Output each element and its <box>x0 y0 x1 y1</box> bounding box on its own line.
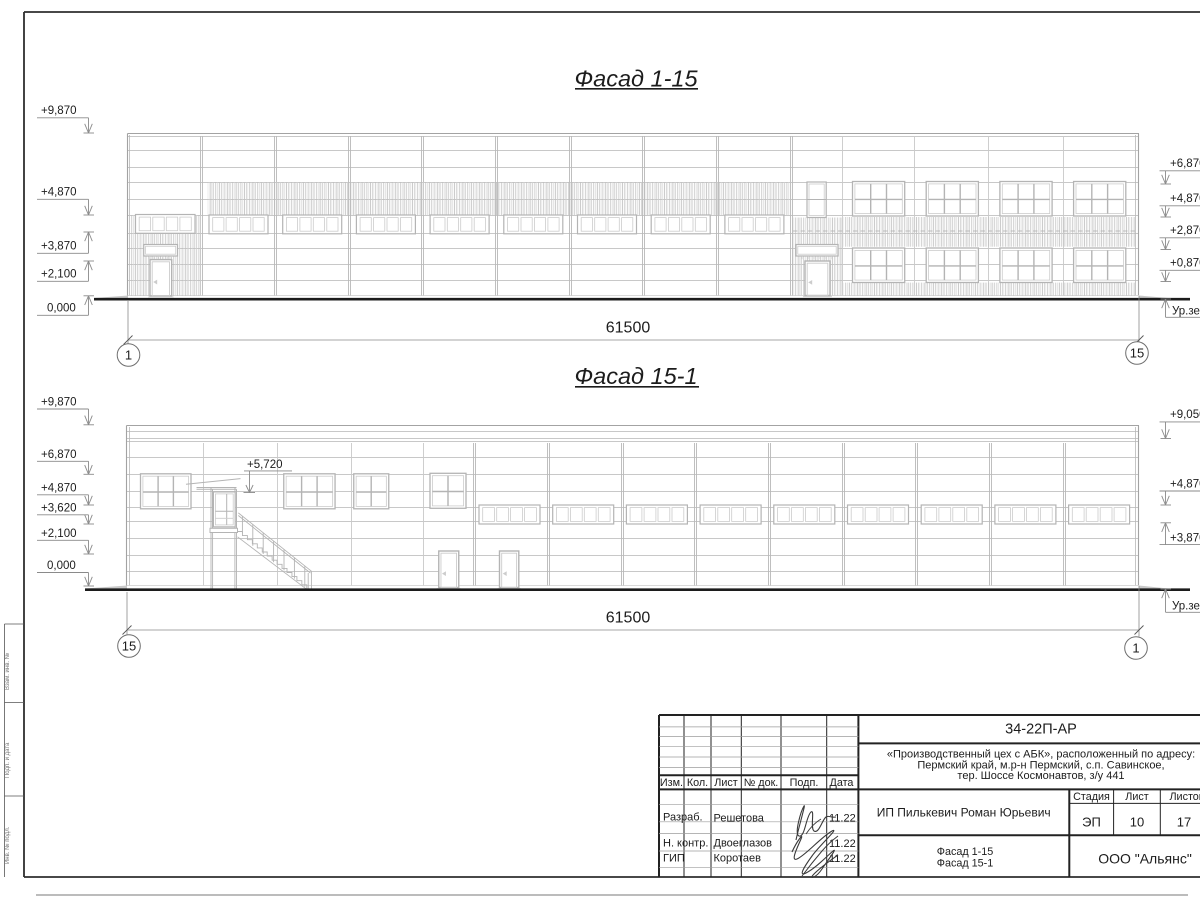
svg-text:Двоеглазов: Двоеглазов <box>714 838 773 850</box>
svg-text:Фасад 15-1: Фасад 15-1 <box>937 858 994 870</box>
svg-text:+9,870: +9,870 <box>41 397 77 409</box>
svg-text:+6,870: +6,870 <box>1170 158 1200 170</box>
svg-text:Разраб.: Разраб. <box>663 812 703 824</box>
svg-text:17: 17 <box>1177 815 1191 830</box>
svg-text:0,000: 0,000 <box>47 560 76 572</box>
svg-text:+9,870: +9,870 <box>41 105 77 117</box>
svg-text:№ док.: № док. <box>744 777 779 789</box>
svg-text:1: 1 <box>125 348 132 363</box>
svg-text:Изм.: Изм. <box>660 777 683 789</box>
svg-text:+9,050: +9,050 <box>1170 409 1200 421</box>
svg-text:61500: 61500 <box>606 320 651 337</box>
svg-text:Фасад 1-15: Фасад 1-15 <box>937 846 994 858</box>
svg-text:Решетова: Решетова <box>714 813 765 825</box>
svg-text:+4,870: +4,870 <box>41 483 77 495</box>
svg-text:15: 15 <box>122 639 136 654</box>
svg-text:Подп.: Подп. <box>790 777 819 789</box>
svg-text:Дата: Дата <box>830 777 854 789</box>
svg-text:+5,720: +5,720 <box>247 459 283 471</box>
svg-text:Инв. № подл.: Инв. № подл. <box>4 826 11 864</box>
svg-text:Подп. и дата: Подп. и дата <box>5 742 11 778</box>
svg-text:0,000: 0,000 <box>47 303 76 315</box>
svg-text:ГИП: ГИП <box>663 853 685 865</box>
svg-text:ООО "Альянс": ООО "Альянс" <box>1098 851 1192 867</box>
svg-text:Стадия: Стадия <box>1073 791 1110 803</box>
svg-text:+0,870: +0,870 <box>1170 258 1200 270</box>
svg-text:+2,100: +2,100 <box>41 528 77 540</box>
svg-text:Лист: Лист <box>714 777 738 789</box>
svg-text:+2,870: +2,870 <box>1170 225 1200 237</box>
svg-text:10: 10 <box>1130 815 1144 830</box>
svg-text:Коротаев: Коротаев <box>714 853 762 865</box>
svg-text:Ур.земли: Ур.земли <box>1172 601 1200 613</box>
svg-text:+6,870: +6,870 <box>41 449 77 461</box>
svg-text:Ур.земли: Ур.земли <box>1172 306 1200 318</box>
svg-text:+4,870: +4,870 <box>1170 193 1200 205</box>
svg-text:+3,620: +3,620 <box>41 503 77 515</box>
svg-text:+2,100: +2,100 <box>41 269 77 281</box>
svg-text:+3,870: +3,870 <box>41 241 77 253</box>
svg-text:+4,870: +4,870 <box>1170 479 1200 491</box>
svg-text:+4,870: +4,870 <box>41 187 77 199</box>
svg-text:тер. Шоссе Космонавтов, з/у 44: тер. Шоссе Космонавтов, з/у 441 <box>957 770 1124 782</box>
svg-text:Н. контр.: Н. контр. <box>663 838 708 850</box>
svg-text:Листов: Листов <box>1169 791 1200 803</box>
svg-text:ИП Пилькевич Роман Юрьевич: ИП Пилькевич Роман Юрьевич <box>877 806 1051 820</box>
svg-text:Фасад 1-15: Фасад 1-15 <box>574 66 698 92</box>
svg-text:11.22: 11.22 <box>829 813 856 825</box>
svg-text:ЭП: ЭП <box>1082 815 1101 830</box>
svg-text:34-22П-АР: 34-22П-АР <box>1005 722 1077 738</box>
svg-text:Кол.: Кол. <box>687 777 708 789</box>
svg-text:+3,870: +3,870 <box>1170 533 1200 545</box>
svg-text:1: 1 <box>1132 641 1139 656</box>
svg-text:61500: 61500 <box>606 610 651 627</box>
svg-text:Лист: Лист <box>1125 791 1149 803</box>
svg-text:Взам. инв. №: Взам. инв. № <box>4 653 11 690</box>
svg-text:Фасад 15-1: Фасад 15-1 <box>574 363 697 389</box>
svg-text:15: 15 <box>1130 346 1144 361</box>
